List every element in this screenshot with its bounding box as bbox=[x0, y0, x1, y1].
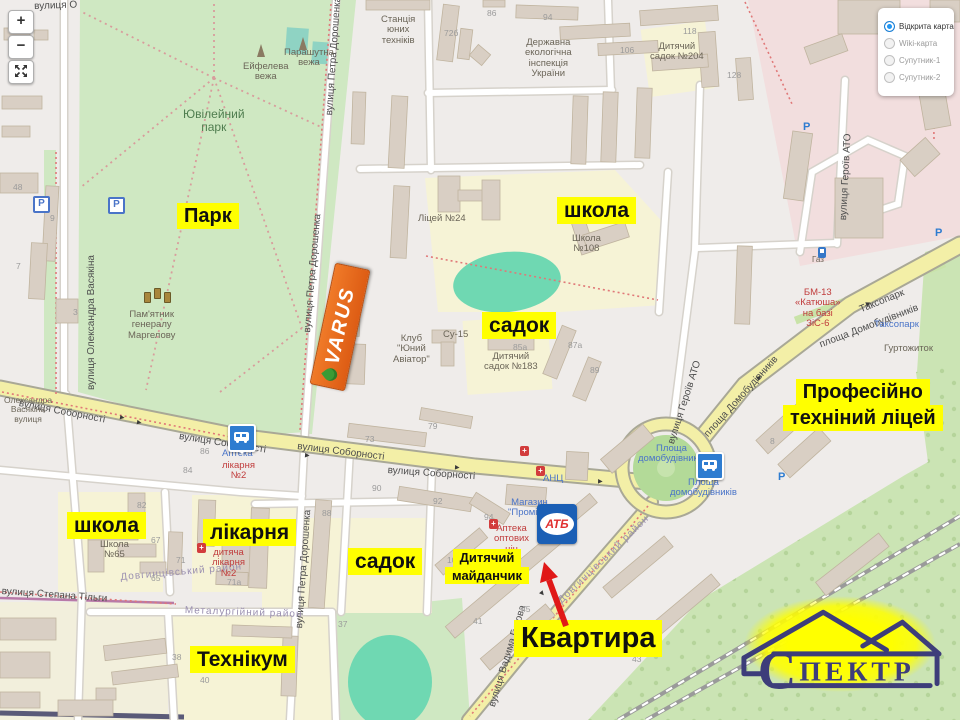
house-number: 7 bbox=[16, 262, 21, 271]
map-application: вулиця Олександра Васякінавулиця Петра Д… bbox=[0, 0, 960, 720]
house-number: 85а bbox=[513, 343, 527, 352]
layer-option-2[interactable]: Wiki-карта bbox=[884, 38, 948, 49]
annotation-playground: Дитячиймайданчик bbox=[445, 549, 529, 584]
radio-icon[interactable] bbox=[884, 21, 895, 32]
spektr-logo: С ПЕКТР bbox=[736, 594, 944, 694]
radio-icon[interactable] bbox=[884, 72, 895, 83]
layer-option-label: Відкрита карта bbox=[899, 22, 954, 31]
one-way-arrow-icon: ▶ bbox=[455, 464, 460, 471]
poi-label: Парашутнавежа bbox=[284, 48, 334, 69]
street-label: вулиця Олександра Васякіна bbox=[86, 255, 97, 390]
poi-label: Су-15 bbox=[443, 330, 468, 340]
fullscreen-icon bbox=[15, 65, 27, 77]
pharmacy-icon: + bbox=[197, 543, 206, 553]
zoom-out-button[interactable]: − bbox=[8, 35, 34, 59]
poi-label: БМ-13«Катюша»на базіЗіС-6 bbox=[795, 288, 841, 330]
house-number: 38 bbox=[172, 653, 181, 662]
annotation-school-top: школа bbox=[557, 197, 636, 224]
poi-label: ОлександраВасякінавулиця bbox=[4, 396, 52, 424]
poi-label: Пам'ятникгенералуМаргелову bbox=[128, 310, 175, 341]
house-number: 79 bbox=[428, 422, 437, 431]
radio-icon[interactable] bbox=[884, 38, 895, 49]
house-number: 9 bbox=[50, 214, 55, 223]
annotation-school-left: школа bbox=[67, 512, 146, 539]
pharmacy-icon: + bbox=[536, 466, 545, 476]
house-number: 67 bbox=[151, 536, 160, 545]
monument-icon bbox=[164, 292, 171, 303]
poi-label: дитячалікарня№2 bbox=[212, 548, 245, 579]
house-number: 90 bbox=[372, 484, 381, 493]
house-number: 37 bbox=[338, 620, 347, 629]
poi-label: Клуб"ЮнийАвіатор" bbox=[393, 334, 430, 365]
one-way-arrow-icon: ▶ bbox=[136, 419, 142, 427]
annotation-sadok-top: садок bbox=[482, 312, 556, 339]
fuel-station-icon bbox=[818, 247, 826, 258]
poi-label: Дитячийсадок №183 bbox=[484, 352, 538, 373]
radio-icon[interactable] bbox=[884, 55, 895, 66]
poi-label: Ювілейнийпарк bbox=[183, 108, 245, 134]
tower-icon bbox=[257, 44, 265, 57]
annotation-college: Технікум bbox=[190, 646, 295, 673]
house-number: 3 bbox=[73, 308, 78, 317]
poi-label: лікарня№2 bbox=[222, 461, 255, 482]
spektr-house-icon: С ПЕКТР bbox=[736, 594, 944, 694]
house-number: 128 bbox=[727, 71, 741, 80]
house-number: 82 bbox=[137, 501, 146, 510]
poi-label: Площадомобудівників bbox=[638, 444, 705, 465]
house-number: 8 bbox=[770, 437, 775, 446]
poi-label: Таксопарк bbox=[874, 320, 919, 330]
pharmacy-icon: + bbox=[489, 519, 498, 529]
poi-label: АНЦ bbox=[543, 474, 563, 484]
spektr-rest: ПЕКТР bbox=[799, 656, 914, 687]
layer-option-label: Супутник-1 bbox=[899, 56, 940, 65]
annotation-hospital: лікарня bbox=[203, 519, 296, 546]
annotation-lyceum: Професійнотехніний ліцей bbox=[783, 379, 943, 431]
house-number: 71а bbox=[227, 578, 241, 587]
parking-icon: P bbox=[803, 121, 810, 133]
house-number: 86 bbox=[200, 447, 209, 456]
poi-label: Ейфелевавежа bbox=[243, 62, 288, 83]
parking-icon: P bbox=[935, 227, 942, 239]
house-number: 86 bbox=[487, 9, 496, 18]
poi-label: Ліцей №24 bbox=[418, 214, 466, 224]
layers-panel[interactable]: Відкрита картаWiki-картаСупутник-1Супутн… bbox=[878, 8, 954, 96]
house-number: 88 bbox=[322, 509, 331, 518]
layer-option-3[interactable]: Супутник-1 bbox=[884, 55, 948, 66]
street-label: вулиця О bbox=[34, 0, 77, 12]
one-way-arrow-icon: ▶ bbox=[598, 478, 603, 485]
bus-stop-icon[interactable] bbox=[228, 424, 256, 452]
poi-label: Дитячийсадок №204 bbox=[650, 42, 704, 63]
house-number: 72б bbox=[444, 29, 458, 38]
house-number: 73 bbox=[365, 435, 374, 444]
poi-label: Гуртожиток bbox=[884, 344, 933, 354]
house-number: 65 bbox=[151, 574, 160, 583]
layer-option-label: Супутник-2 bbox=[899, 73, 940, 82]
atb-logo-text: АТБ bbox=[545, 517, 568, 531]
tower-icon bbox=[299, 37, 307, 50]
house-number: 89 bbox=[590, 366, 599, 375]
bus-stop-icon[interactable] bbox=[696, 452, 724, 480]
house-number: 71 bbox=[176, 556, 185, 565]
parking-icon: P bbox=[33, 196, 50, 213]
layer-option-1[interactable]: Відкрита карта bbox=[884, 21, 948, 32]
layer-option-4[interactable]: Супутник-2 bbox=[884, 72, 948, 83]
atb-logo: АТБ bbox=[537, 504, 577, 544]
parking-icon: P bbox=[778, 471, 785, 483]
house-number: 40 bbox=[200, 676, 209, 685]
poi-label: Школа№108 bbox=[572, 234, 601, 255]
house-number: 84 bbox=[183, 466, 192, 475]
fullscreen-button[interactable] bbox=[8, 60, 34, 84]
one-way-arrow-icon: ▶ bbox=[305, 452, 310, 459]
house-number: 45 bbox=[521, 605, 530, 614]
monument-icon bbox=[144, 292, 151, 303]
poi-label: Школа№65 bbox=[100, 540, 129, 561]
spektr-initial: С bbox=[758, 641, 797, 694]
annotation-sadok-bottom: садок bbox=[348, 548, 422, 575]
annotation-apartment: Квартира bbox=[514, 620, 662, 657]
poi-label: Площадомобудівників bbox=[670, 478, 737, 499]
leaf-icon bbox=[321, 365, 339, 383]
poi-label: Станціяюнихтехніків bbox=[381, 15, 415, 46]
house-number: 106 bbox=[620, 46, 634, 55]
one-way-arrow-icon: ▶ bbox=[119, 414, 125, 422]
house-number: 48 bbox=[13, 183, 22, 192]
house-number: 41 bbox=[473, 617, 482, 626]
house-number: 118 bbox=[683, 27, 697, 36]
annotation-park: Парк bbox=[177, 203, 239, 229]
parking-icon: P bbox=[108, 197, 125, 214]
house-number: 92 bbox=[433, 497, 442, 506]
house-number: 87а bbox=[568, 341, 582, 350]
zoom-in-button[interactable]: + bbox=[8, 10, 34, 34]
pharmacy-icon: + bbox=[520, 446, 529, 456]
poi-label: ДержавнаекологічнаінспекціяУкраїни bbox=[525, 38, 572, 80]
monument-icon bbox=[154, 288, 161, 299]
layer-option-label: Wiki-карта bbox=[899, 39, 937, 48]
house-number: 94 bbox=[543, 13, 552, 22]
atb-oval: АТБ bbox=[540, 513, 574, 535]
